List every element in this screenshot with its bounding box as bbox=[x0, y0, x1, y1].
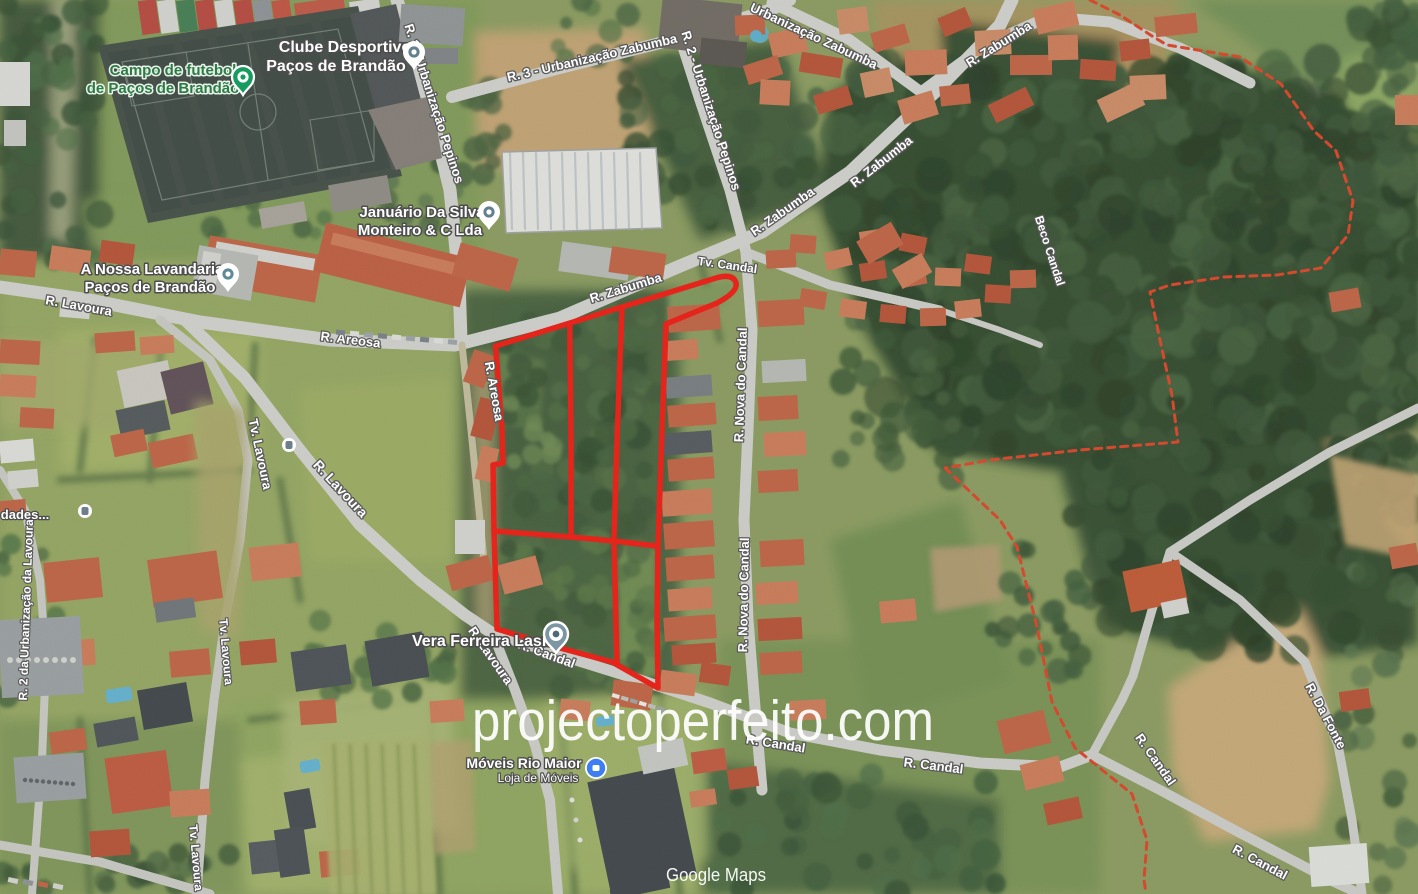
svg-text:dades...: dades... bbox=[1, 507, 49, 522]
svg-text:Paços de Brandão: Paços de Brandão bbox=[85, 279, 216, 296]
svg-text:projectoperfeito.com: projectoperfeito.com bbox=[472, 689, 934, 753]
svg-text:Paços de Brandão: Paços de Brandão bbox=[266, 58, 406, 75]
svg-text:Loja de Móveis: Loja de Móveis bbox=[498, 771, 579, 785]
svg-text:de Paços de Brandão: de Paços de Brandão bbox=[87, 80, 240, 97]
svg-text:Vera Ferreira Lasm: Vera Ferreira Lasm bbox=[412, 633, 556, 650]
svg-text:Campo de futebol: Campo de futebol bbox=[110, 62, 237, 79]
svg-text:A Nossa Lavandaria: A Nossa Lavandaria bbox=[81, 261, 224, 278]
svg-text:Monteiro & C Lda: Monteiro & C Lda bbox=[358, 222, 483, 239]
svg-text:R. Nova do Candal: R. Nova do Candal bbox=[735, 537, 752, 652]
svg-text:Januário Da Silva: Januário Da Silva bbox=[359, 204, 485, 221]
svg-text:Clube Desportivo: Clube Desportivo bbox=[279, 39, 412, 56]
svg-text:Móveis Rio Maior: Móveis Rio Maior bbox=[466, 755, 582, 771]
svg-text:Google Maps: Google Maps bbox=[666, 865, 766, 885]
